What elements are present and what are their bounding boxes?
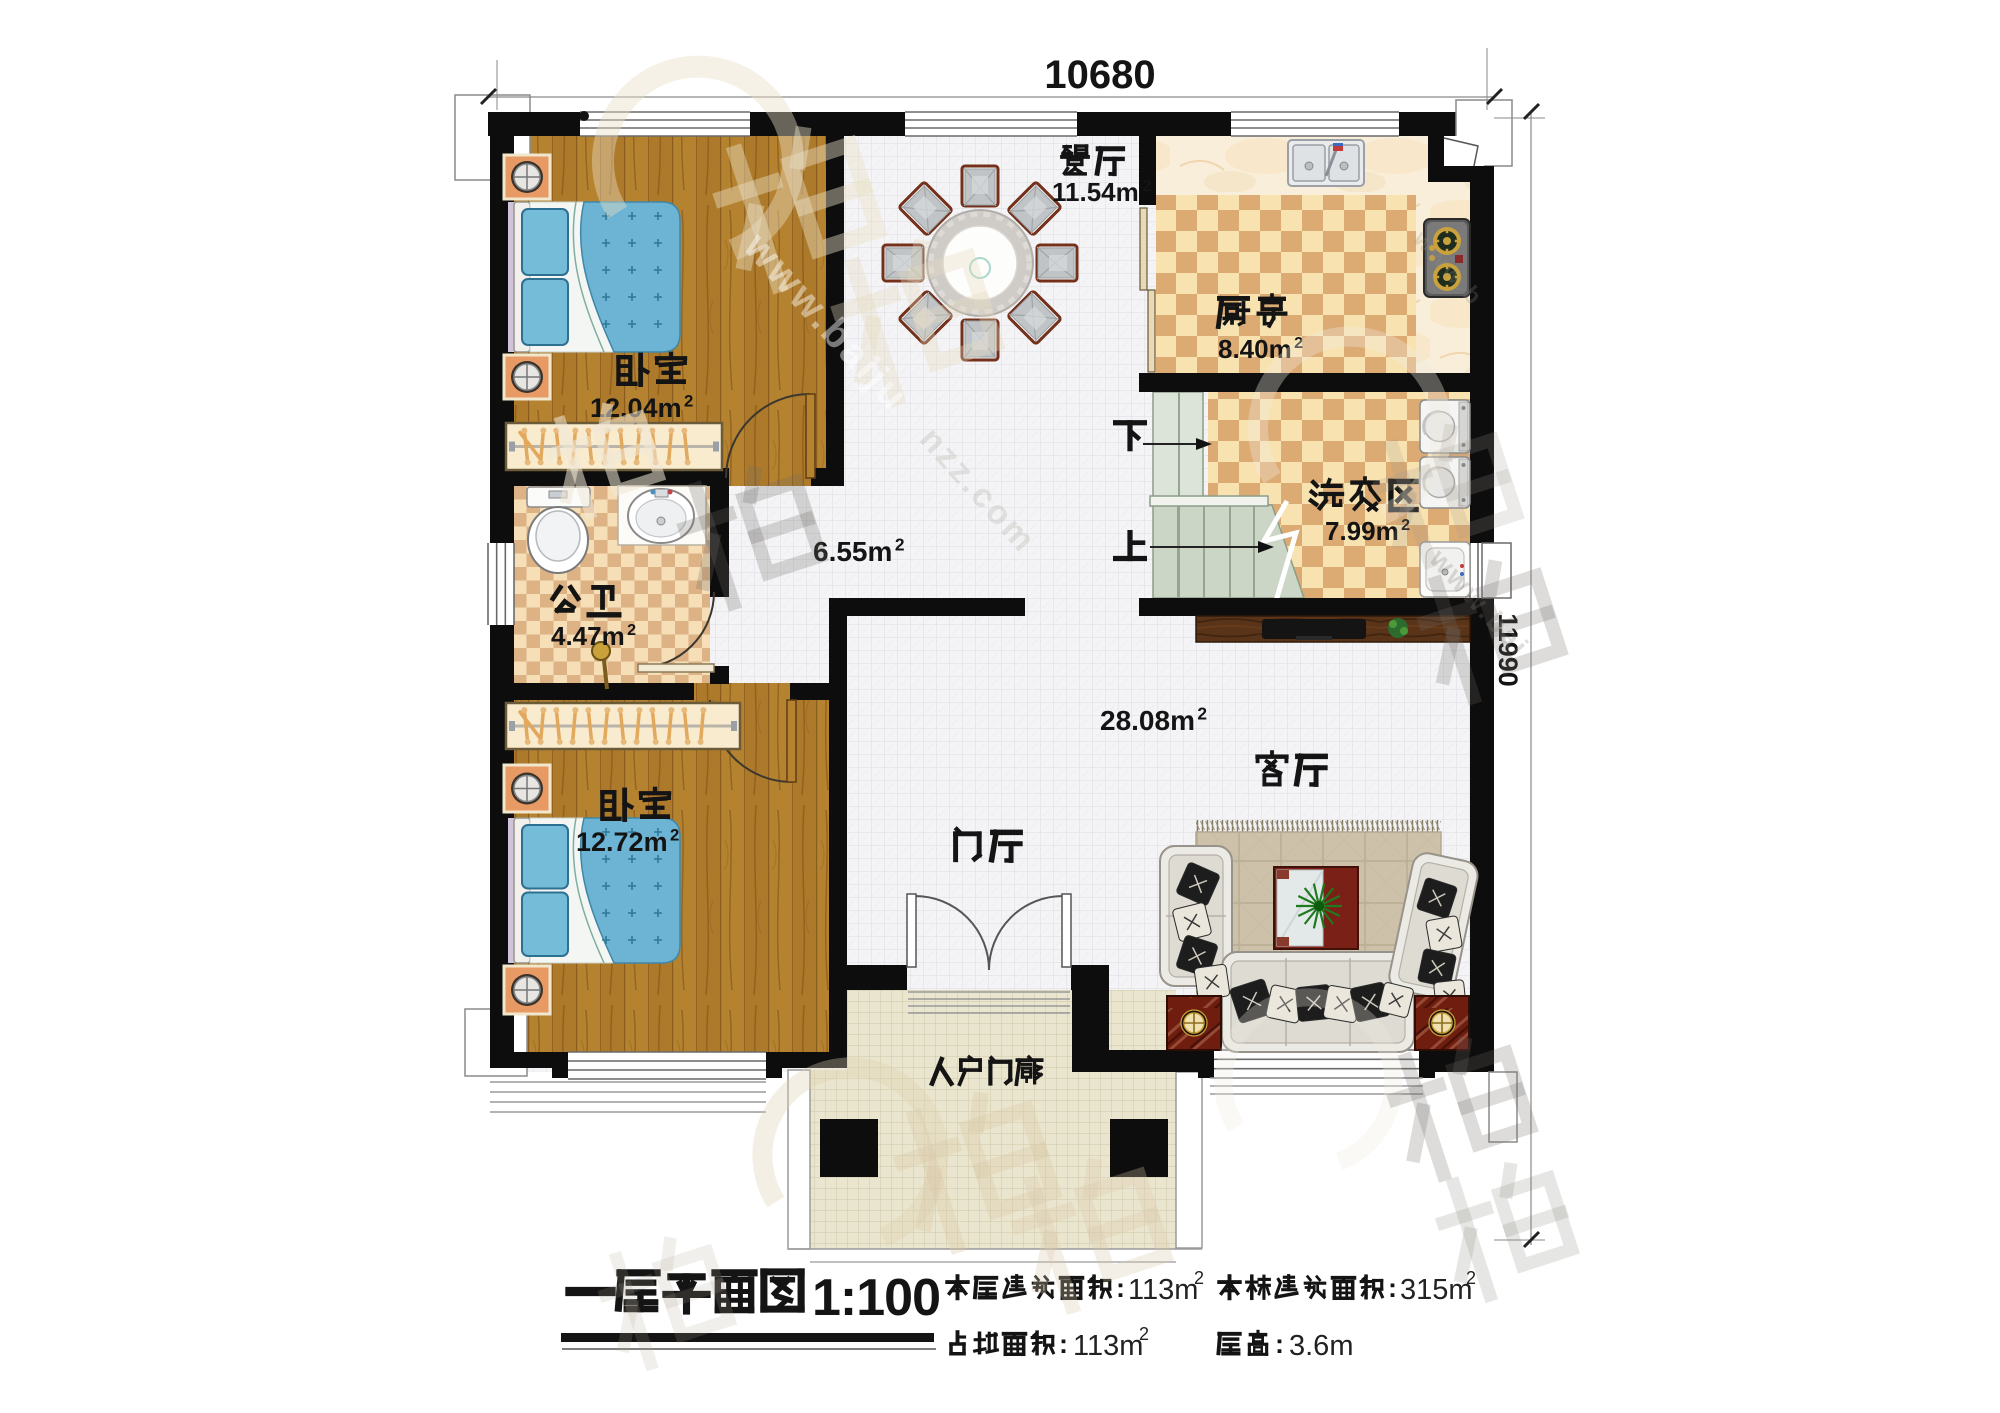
svg-text:2: 2 xyxy=(895,534,905,554)
svg-text:12.72m: 12.72m xyxy=(576,827,668,857)
svg-text:113m: 113m xyxy=(1073,1330,1143,1362)
svg-text:1:100: 1:100 xyxy=(812,1269,940,1327)
svg-text:2: 2 xyxy=(670,826,679,845)
svg-text:2: 2 xyxy=(1143,177,1152,195)
svg-text::: : xyxy=(1059,1329,1068,1359)
svg-text:113m: 113m xyxy=(1128,1274,1198,1306)
svg-text:2: 2 xyxy=(627,621,636,639)
svg-text:2: 2 xyxy=(1139,1324,1149,1344)
svg-text:28.08m: 28.08m xyxy=(1100,705,1195,736)
svg-text:2: 2 xyxy=(1194,1268,1204,1288)
svg-text:2: 2 xyxy=(684,392,693,411)
svg-text:4.47m: 4.47m xyxy=(551,621,625,651)
svg-text::: : xyxy=(1388,1273,1397,1303)
svg-text::: : xyxy=(1275,1329,1284,1359)
svg-text:11.54m: 11.54m xyxy=(1052,177,1139,207)
svg-text:2: 2 xyxy=(1197,703,1207,723)
svg-text:3.6m: 3.6m xyxy=(1289,1330,1353,1362)
svg-text:10680: 10680 xyxy=(1044,53,1155,97)
